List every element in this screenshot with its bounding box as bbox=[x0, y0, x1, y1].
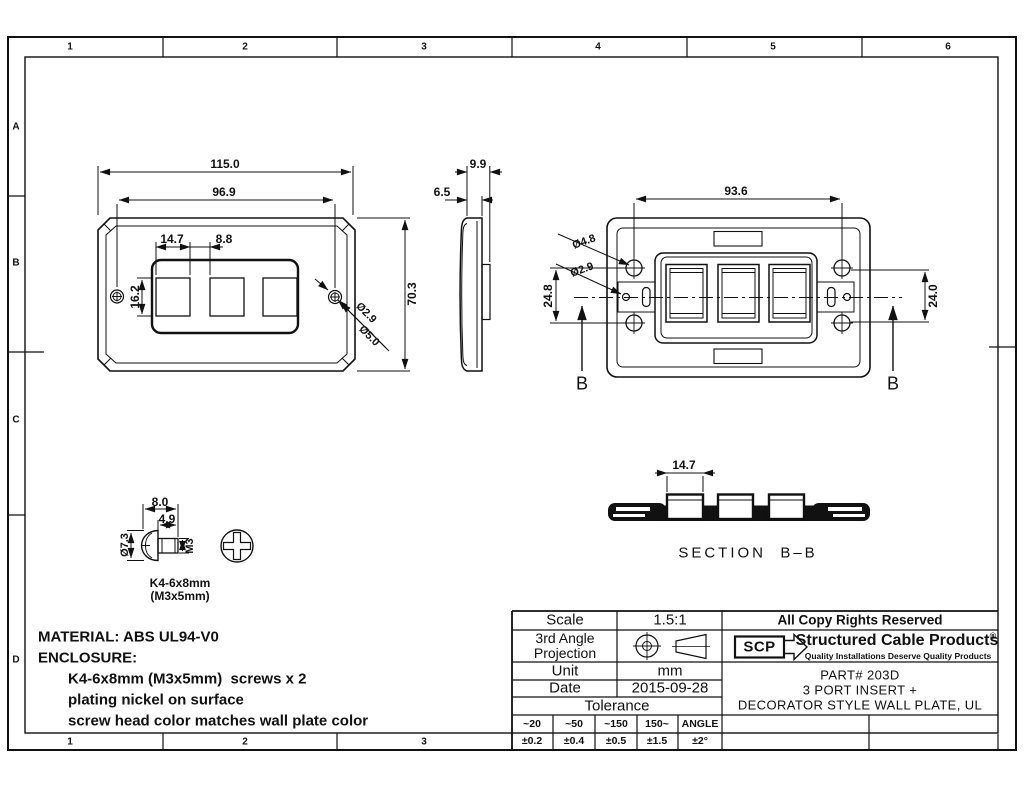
section-view-linework bbox=[608, 473, 870, 521]
dim-port-width-front: 14.7 bbox=[160, 232, 183, 246]
phillips-cross-icon bbox=[224, 533, 251, 560]
date-value: 2015-09-28 bbox=[632, 680, 709, 697]
front-view-linework bbox=[98, 166, 410, 371]
grid-col-1-bottom: 1 bbox=[67, 737, 73, 748]
grid-row-c: C bbox=[12, 415, 19, 426]
dim-port-gap: 8.8 bbox=[216, 232, 233, 246]
dim-left-span: 24.8 bbox=[541, 284, 555, 307]
unit-label: Unit bbox=[552, 663, 579, 680]
grid-col-3-bottom: 3 bbox=[421, 737, 427, 748]
grid-row-b: B bbox=[12, 258, 19, 269]
tol-header-150plus: 150~ bbox=[645, 718, 669, 730]
engineering-drawing-sheet: 1 2 3 4 5 6 1 2 3 A B C D 115.0 96.9 14.… bbox=[0, 0, 1024, 791]
projection-label: 3rd Angle Projection bbox=[520, 631, 610, 661]
grid-col-5-top: 5 bbox=[770, 42, 776, 53]
section-title: SECTION B–B bbox=[678, 545, 817, 562]
tol-value-50: ±0.4 bbox=[564, 735, 584, 747]
scp-logo-text: SCP bbox=[743, 639, 775, 656]
section-letter-right: B bbox=[887, 374, 899, 395]
dim-port-height: 16.2 bbox=[128, 285, 142, 308]
dim-screw-thread: M3 bbox=[184, 538, 196, 553]
tol-value-150: ±0.5 bbox=[606, 735, 626, 747]
front-screw-left bbox=[111, 290, 124, 303]
dim-screw-shaft-length: 4.9 bbox=[159, 512, 176, 526]
dim-screw-head-dia: Ø7.3 bbox=[119, 533, 131, 557]
tol-value-angle: ±2° bbox=[692, 735, 708, 747]
scale-label: Scale bbox=[546, 612, 584, 629]
back-ports-inner bbox=[670, 269, 806, 319]
screw-spec-line1: K4-6x8mm bbox=[150, 576, 211, 590]
screw-spec-line2: (M3x5mm) bbox=[150, 589, 209, 603]
section-view-dimensions bbox=[655, 473, 715, 492]
part-desc-line2: DECORATOR STYLE WALL PLATE, UL bbox=[738, 698, 982, 713]
dim-depth-overall: 9.9 bbox=[470, 157, 487, 171]
section-letter-left: B bbox=[576, 374, 588, 395]
dim-height-overall: 70.3 bbox=[405, 282, 419, 305]
third-angle-projection-icon bbox=[633, 632, 710, 660]
front-view-dimensions bbox=[98, 166, 410, 371]
note-screws: K4-6x8mm (M3x5mm) screws x 2 bbox=[68, 671, 306, 688]
note-screw-head-color: screw head color matches wall plate colo… bbox=[68, 713, 368, 730]
unit-value: mm bbox=[658, 663, 683, 680]
copyrights-text: All Copy Rights Reserved bbox=[777, 613, 942, 628]
tol-value-20: ±0.2 bbox=[522, 735, 542, 747]
tol-value-150plus: ±1.5 bbox=[647, 735, 667, 747]
company-name: Structured Cable Products bbox=[796, 632, 999, 650]
grid-col-4-top: 4 bbox=[595, 42, 601, 53]
side-view-linework bbox=[445, 166, 502, 371]
tolerance-label: Tolerance bbox=[584, 698, 649, 715]
company-tagline: Quality Installations Deserve Quality Pr… bbox=[805, 651, 992, 661]
tol-header-20: ~20 bbox=[523, 718, 541, 730]
back-view-linework bbox=[550, 199, 929, 377]
dim-screw-span-back: 93.6 bbox=[724, 184, 747, 198]
tol-header-50: ~50 bbox=[565, 718, 583, 730]
grid-col-2-bottom: 2 bbox=[242, 737, 248, 748]
tol-header-angle: ANGLE bbox=[682, 718, 719, 730]
dim-screw-span-front: 96.9 bbox=[212, 185, 235, 199]
grid-col-6-top: 6 bbox=[945, 42, 951, 53]
note-enclosure: ENCLOSURE: bbox=[38, 650, 137, 667]
grid-col-3-top: 3 bbox=[421, 42, 427, 53]
dim-depth-body: 6.5 bbox=[434, 185, 451, 199]
dim-width-overall: 115.0 bbox=[210, 157, 239, 171]
dim-screw-head-width: 8.0 bbox=[152, 495, 169, 509]
scale-value: 1.5:1 bbox=[653, 612, 686, 629]
part-desc-line1: 3 PORT INSERT + bbox=[803, 683, 918, 698]
note-plating: plating nickel on surface bbox=[68, 692, 244, 709]
company-registered-mark: ® bbox=[990, 631, 997, 641]
part-number: PART# 203D bbox=[820, 668, 899, 683]
note-material: MATERIAL: ABS UL94-V0 bbox=[38, 629, 219, 646]
date-label: Date bbox=[549, 680, 581, 697]
grid-col-2-top: 2 bbox=[242, 42, 248, 53]
dim-right-span: 24.0 bbox=[926, 284, 940, 307]
side-view-dimensions bbox=[445, 166, 502, 262]
grid-col-1-top: 1 bbox=[67, 42, 73, 53]
dim-section-port-width: 14.7 bbox=[672, 458, 695, 472]
grid-row-d: D bbox=[12, 655, 19, 666]
tol-header-150: ~150 bbox=[604, 718, 628, 730]
grid-row-a: A bbox=[12, 122, 19, 133]
